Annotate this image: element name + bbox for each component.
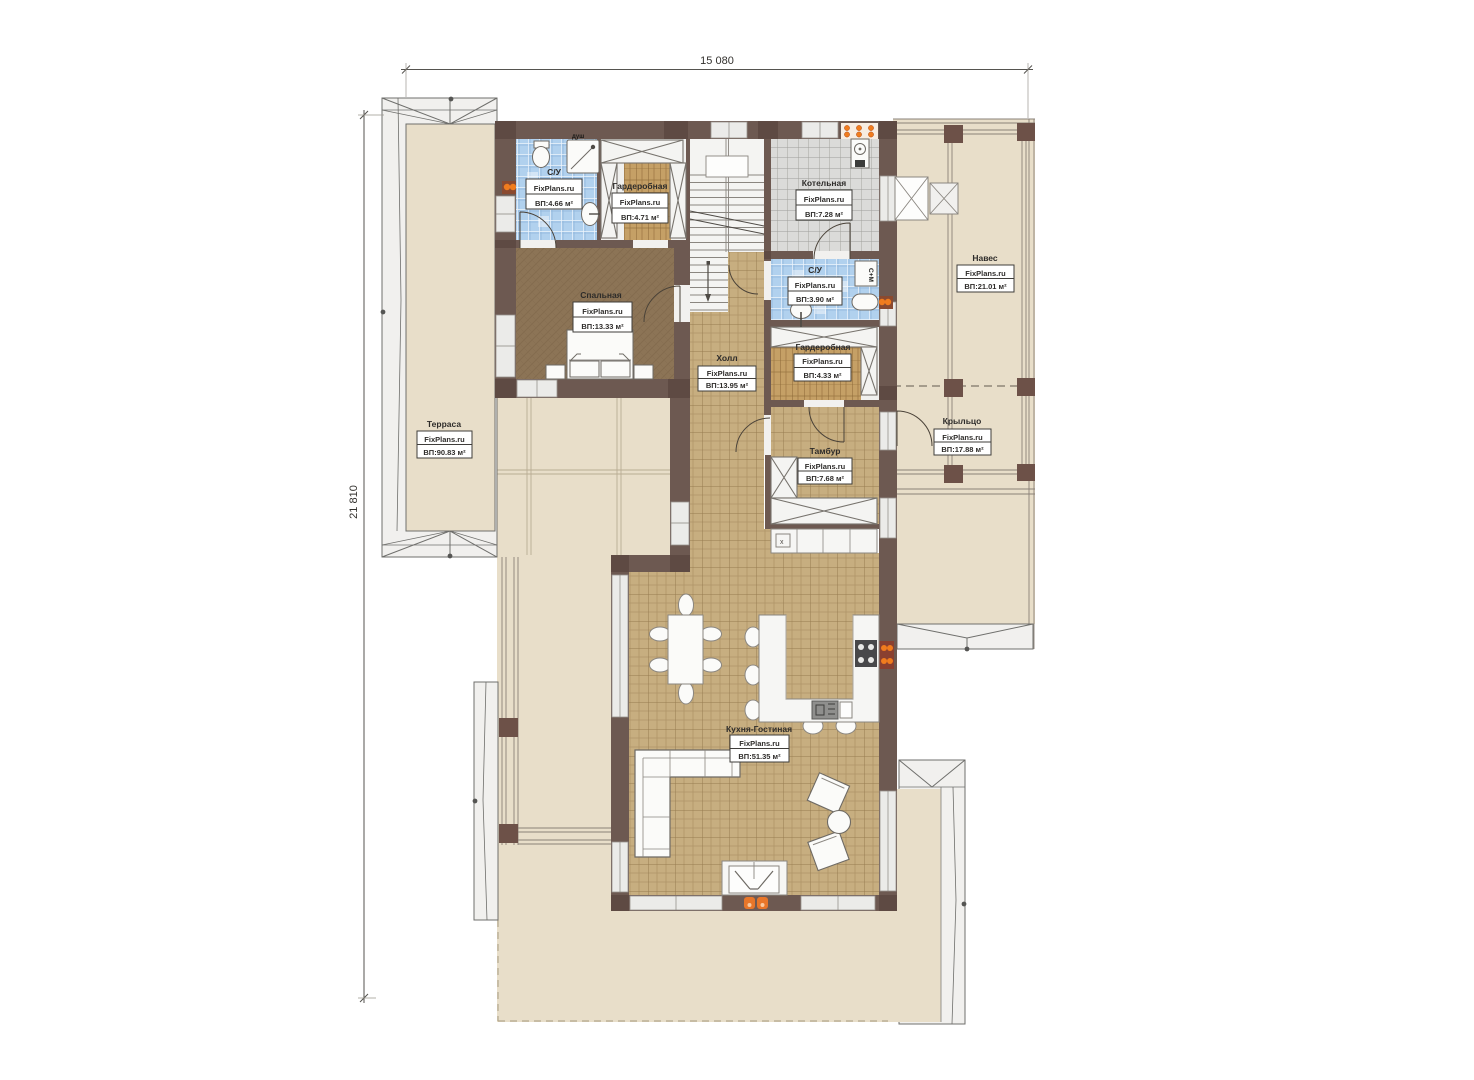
- svg-text:x: x: [780, 539, 784, 546]
- svg-text:ВП:7.68 м²: ВП:7.68 м²: [806, 474, 845, 483]
- svg-text:FixPlans.ru: FixPlans.ru: [534, 184, 575, 193]
- svg-text:Крыльцо: Крыльцо: [943, 416, 982, 426]
- svg-text:ВП:4.66 м²: ВП:4.66 м²: [535, 199, 574, 208]
- svg-text:Кухня-Гостиная: Кухня-Гостиная: [726, 724, 792, 734]
- svg-text:ВП:17.88 м²: ВП:17.88 м²: [941, 445, 984, 454]
- svg-text:ВП:4.71 м²: ВП:4.71 м²: [621, 213, 660, 222]
- svg-text:FixPlans.ru: FixPlans.ru: [965, 269, 1006, 278]
- svg-text:С/У: С/У: [547, 167, 562, 177]
- svg-text:FixPlans.ru: FixPlans.ru: [802, 357, 843, 366]
- svg-text:ВП:90.83 м²: ВП:90.83 м²: [423, 448, 466, 457]
- svg-text:FixPlans.ru: FixPlans.ru: [805, 462, 846, 471]
- svg-text:ВП:3.90 м²: ВП:3.90 м²: [796, 295, 835, 304]
- svg-text:Гардеробная: Гардеробная: [796, 342, 851, 352]
- svg-text:21 810: 21 810: [348, 485, 360, 519]
- svg-text:Тамбур: Тамбур: [810, 446, 841, 456]
- svg-text:FixPlans.ru: FixPlans.ru: [424, 435, 465, 444]
- svg-text:FixPlans.ru: FixPlans.ru: [707, 369, 748, 378]
- svg-text:FixPlans.ru: FixPlans.ru: [795, 281, 836, 290]
- svg-text:Котельная: Котельная: [802, 178, 847, 188]
- svg-text:FixPlans.ru: FixPlans.ru: [804, 195, 845, 204]
- svg-text:ВП:4.33 м²: ВП:4.33 м²: [803, 371, 842, 380]
- svg-text:ВП:7.28 м²: ВП:7.28 м²: [805, 210, 844, 219]
- svg-text:FixPlans.ru: FixPlans.ru: [739, 739, 780, 748]
- svg-text:Гардеробная: Гардеробная: [613, 181, 668, 191]
- svg-text:душ: душ: [572, 134, 584, 140]
- svg-text:ВП:21.01 м²: ВП:21.01 м²: [964, 282, 1007, 291]
- svg-text:FixPlans.ru: FixPlans.ru: [620, 198, 661, 207]
- svg-text:С/У: С/У: [808, 265, 823, 275]
- svg-text:Навес: Навес: [972, 253, 998, 263]
- svg-text:FixPlans.ru: FixPlans.ru: [582, 307, 623, 316]
- svg-text:Терраса: Терраса: [427, 419, 461, 429]
- svg-text:Спальная: Спальная: [580, 290, 621, 300]
- svg-text:С+М: С+М: [867, 268, 874, 282]
- svg-text:15 080: 15 080: [700, 55, 734, 67]
- svg-text:ВП:13.95 м²: ВП:13.95 м²: [706, 381, 749, 390]
- svg-text:Холл: Холл: [716, 353, 737, 363]
- svg-text:ВП:51.35 м²: ВП:51.35 м²: [738, 752, 781, 761]
- svg-text:FixPlans.ru: FixPlans.ru: [942, 433, 983, 442]
- svg-text:ВП:13.33 м²: ВП:13.33 м²: [581, 322, 624, 331]
